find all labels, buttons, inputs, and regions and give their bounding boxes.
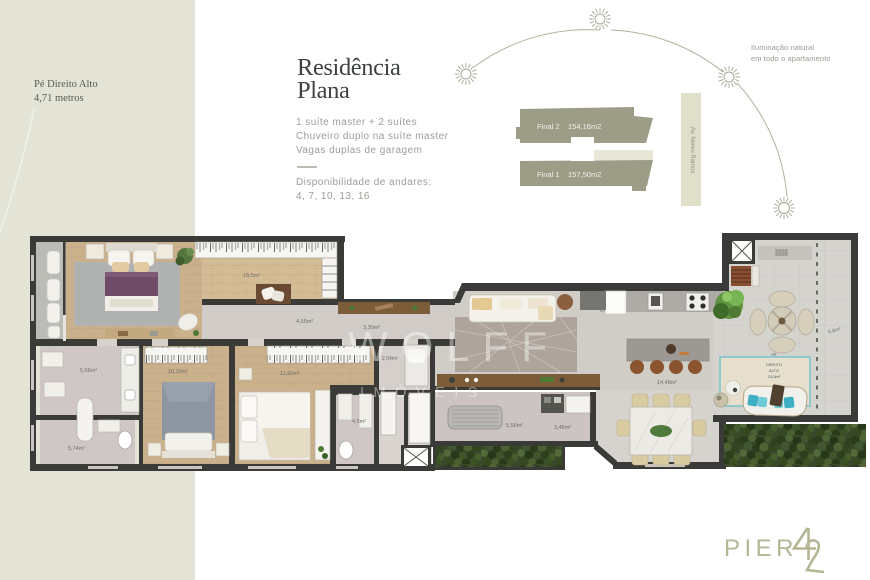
svg-text:DIREITO: DIREITO: [766, 362, 782, 367]
svg-text:5,56m²: 5,56m²: [506, 423, 523, 429]
svg-text:Av. Nereu Ramos: Av. Nereu Ramos: [689, 127, 695, 174]
svg-text:IMÓVEIS: IMÓVEIS: [360, 384, 487, 401]
svg-text:WOLFF: WOLFF: [348, 323, 560, 370]
svg-text:157,50m2: 157,50m2: [568, 170, 601, 179]
svg-text:11,60m²: 11,60m²: [280, 371, 300, 377]
svg-text:14,48m²: 14,48m²: [657, 380, 677, 386]
svg-text:10,30m²: 10,30m²: [168, 369, 188, 375]
svg-text:PÉ: PÉ: [771, 352, 777, 357]
svg-text:ALTO: ALTO: [769, 368, 779, 373]
svg-text:PIER: PIER: [724, 535, 798, 562]
svg-text:Final 1: Final 1: [537, 170, 560, 179]
svg-text:3,46m²: 3,46m²: [554, 425, 571, 431]
svg-text:154,16m2: 154,16m2: [568, 122, 601, 131]
svg-text:4,5m²: 4,5m²: [352, 419, 366, 425]
svg-text:13,5m²: 13,5m²: [768, 374, 781, 379]
svg-text:5,74m²: 5,74m²: [68, 446, 85, 452]
svg-text:4,55m²: 4,55m²: [296, 319, 313, 325]
svg-text:5,66m²: 5,66m²: [80, 368, 97, 374]
svg-text:Final 2: Final 2: [537, 122, 560, 131]
svg-text:19,5m²: 19,5m²: [243, 273, 260, 279]
